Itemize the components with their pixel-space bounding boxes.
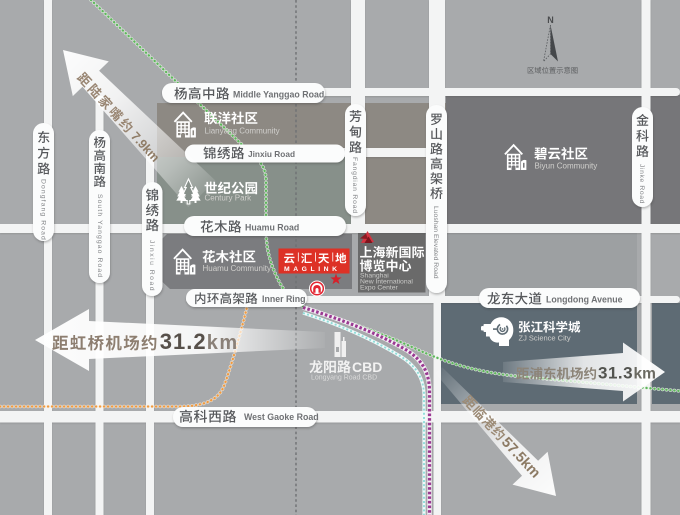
svg-text:31.2: 31.2 bbox=[160, 329, 207, 354]
svg-text:Biyun Community: Biyun Community bbox=[535, 162, 598, 171]
svg-text:km: km bbox=[207, 332, 239, 354]
svg-text:South Yanggao Road: South Yanggao Road bbox=[96, 194, 103, 278]
svg-text:31.3: 31.3 bbox=[598, 364, 633, 383]
svg-text:ZJ Science City: ZJ Science City bbox=[519, 334, 571, 343]
svg-text:CBD: CBD bbox=[352, 359, 382, 375]
svg-text:West Gaoke Road: West Gaoke Road bbox=[244, 412, 319, 422]
svg-text:MAGLINK: MAGLINK bbox=[284, 266, 341, 273]
svg-text:Jinxiu Road: Jinxiu Road bbox=[148, 240, 155, 292]
svg-text:Dongfang Road: Dongfang Road bbox=[39, 179, 46, 241]
svg-text:Expo Center: Expo Center bbox=[360, 285, 399, 292]
svg-text:Lianyang Community: Lianyang Community bbox=[205, 127, 280, 136]
svg-text:Fangdian Road: Fangdian Road bbox=[351, 157, 358, 214]
svg-text:Longyang Road CBD: Longyang Road CBD bbox=[311, 375, 377, 382]
svg-text:Jinxiu Road: Jinxiu Road bbox=[248, 149, 295, 159]
svg-text:Longdong Avenue: Longdong Avenue bbox=[546, 295, 623, 305]
svg-text:Century Park: Century Park bbox=[205, 194, 253, 203]
svg-text:Huamu Road: Huamu Road bbox=[245, 223, 299, 233]
svg-text:N: N bbox=[547, 15, 554, 25]
svg-text:Luoshan Elevated Road: Luoshan Elevated Road bbox=[432, 206, 439, 279]
svg-text:Huamu Community: Huamu Community bbox=[203, 264, 271, 273]
svg-text:Inner Ring: Inner Ring bbox=[262, 294, 306, 304]
svg-text:km: km bbox=[634, 366, 656, 383]
svg-text:Middle Yanggao Road: Middle Yanggao Road bbox=[233, 90, 324, 100]
svg-text:Jinke Road: Jinke Road bbox=[638, 164, 645, 204]
